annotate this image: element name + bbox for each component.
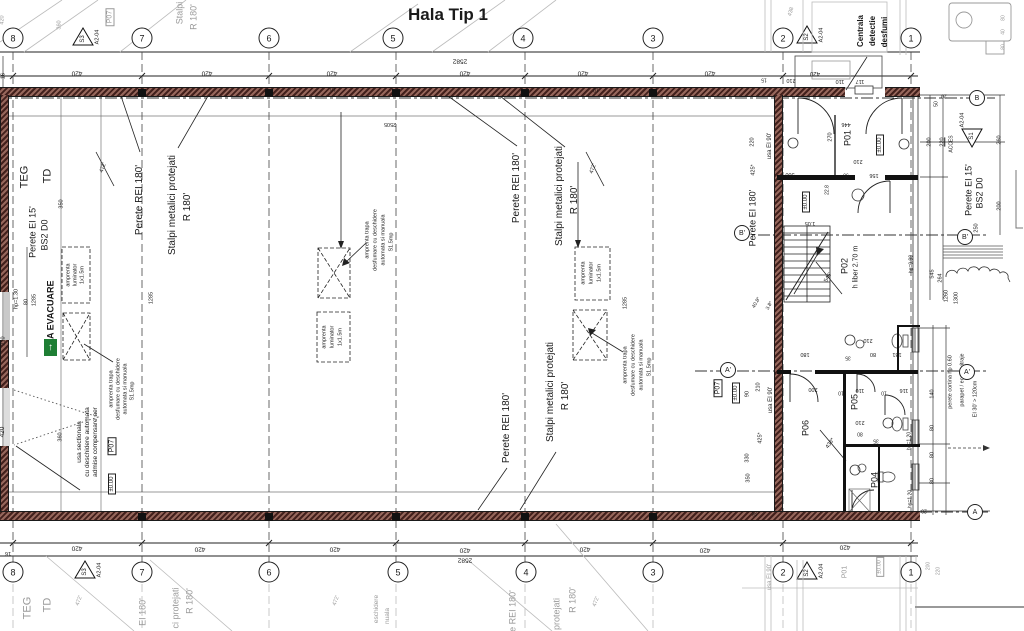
annotation: 2582	[458, 556, 472, 563]
annotation: cu deschidere automata	[85, 407, 92, 476]
annotation: 420	[0, 427, 6, 438]
grid-bubble-top: 2	[773, 28, 794, 49]
partition-wall	[897, 325, 899, 372]
annotation: Perete REI 180'	[512, 153, 522, 223]
annotation: 545	[930, 269, 936, 278]
grid-bubble-bottom: 8	[3, 562, 24, 583]
annotation: ±0.00	[802, 192, 810, 213]
annotation: 1x1.5m	[80, 266, 86, 284]
annotation: 200	[808, 385, 817, 391]
annotation: luminator	[589, 262, 595, 285]
annotation: 420	[72, 69, 83, 76]
partition-wall	[885, 175, 918, 180]
annotation: amprenta	[581, 261, 587, 284]
annotation: 90	[745, 391, 751, 397]
annotation: hp=1.20	[909, 490, 914, 508]
annotation: 80	[857, 431, 863, 436]
annotation: ±0.00	[876, 557, 884, 577]
annotation: 10	[838, 390, 844, 395]
annotation: BS2 D0	[976, 177, 985, 208]
grid-bubble-bottom: 6	[259, 562, 280, 583]
annotation: ±0.00	[876, 135, 884, 156]
annotation: TEG	[23, 597, 34, 620]
annotation: 200	[927, 137, 933, 146]
column	[521, 513, 529, 521]
annotation: 110	[836, 77, 845, 83]
grid-bubble-top: 4	[513, 28, 534, 49]
annotation: A2-04	[819, 564, 825, 579]
annotation: 1285	[623, 297, 629, 309]
annotation: 156	[869, 171, 878, 177]
annotation: ACCES	[950, 135, 955, 152]
annotation: automata si manuala	[123, 363, 129, 414]
annotation: 80	[870, 350, 876, 356]
annotation: desfumare cu deschidere	[631, 334, 637, 396]
annotation: parapet / ecran vitraje	[960, 353, 966, 406]
annotation: S2	[804, 569, 810, 576]
annotation: R 180'	[561, 382, 571, 411]
annotation: S2	[804, 33, 810, 40]
annotation: 360	[57, 20, 63, 29]
grid-bubble-bottom: 2	[773, 562, 794, 583]
grid-bubble-letter: A'	[720, 362, 736, 378]
annotation: 420	[0, 15, 6, 24]
wall-divider-hatched	[774, 95, 783, 511]
annotation: protejati	[553, 598, 562, 630]
annotation: R 180'	[186, 588, 195, 614]
annotation: 425*	[758, 432, 764, 443]
annotation: Perete EI 15'	[29, 206, 38, 258]
annotation: A2-04	[960, 113, 966, 128]
annotation: hp=1.20	[908, 432, 913, 450]
annotation: 420	[195, 545, 206, 552]
annotation: TEG	[20, 166, 31, 189]
annotation: luminator	[73, 264, 79, 287]
annotation: 210	[863, 336, 872, 342]
grid-bubble-top: 7	[132, 28, 153, 49]
annotation: amprenta	[322, 325, 328, 348]
annotation: e REI 180'	[509, 590, 518, 631]
annotation: Stalpi	[176, 2, 185, 25]
annotation: 420	[840, 543, 851, 550]
annotation: 210	[1, 336, 7, 345]
annotation: admise compensare aer	[93, 407, 100, 477]
annotation: 15	[761, 77, 767, 82]
annotation: 2505	[384, 120, 396, 126]
annotation: P07	[106, 8, 115, 26]
annotation: A2-04	[95, 30, 101, 45]
annotation: 200	[927, 562, 932, 570]
wall-top-hatched	[0, 87, 845, 97]
annotation: Perete EI 15'	[965, 164, 974, 216]
annotation: S1.5mp	[647, 358, 653, 377]
annotation: amprenta trapa	[109, 370, 115, 407]
wall-left-hatched	[0, 95, 9, 292]
wall-left-hatched	[0, 340, 9, 388]
annotation: S1	[969, 132, 975, 139]
annotation: 264	[938, 273, 944, 282]
annotation: R 180'	[190, 4, 199, 30]
annotation: 200	[997, 201, 1003, 210]
grid-bubble-bottom: 5	[388, 562, 409, 583]
annotation: 420	[578, 69, 589, 76]
annotation: S1.5mp	[389, 233, 395, 252]
annotation: ±0.00	[108, 474, 116, 495]
annotation: desfumare cu deschidere	[373, 209, 379, 271]
annotation: A2-04	[97, 563, 103, 578]
annotation: 20	[921, 508, 927, 513]
grid-bubble-letter: A'	[959, 364, 975, 380]
grid-bubble-bottom: 3	[643, 562, 664, 583]
annotation: 16	[5, 549, 11, 555]
annotation: 360	[58, 432, 64, 441]
grid-bubble-top: 8	[3, 28, 24, 49]
annotation: Stalpi metalici protejati	[555, 146, 565, 246]
column	[521, 89, 529, 97]
column	[392, 89, 400, 97]
wall-left-hatched	[0, 446, 9, 511]
grid-bubble-letter: A	[967, 504, 983, 520]
annotation: R 180'	[183, 193, 193, 222]
grid-bubble-bottom: 7	[132, 562, 153, 583]
annotation: amprenta trapa	[623, 346, 629, 383]
annotation: 80	[930, 452, 936, 458]
annotation: 80	[930, 425, 936, 431]
annotation: 446	[841, 120, 850, 126]
annotation: 420	[460, 546, 471, 553]
annotation: 350	[59, 199, 65, 208]
annotation: 20	[941, 93, 947, 98]
annotation: Centrala	[857, 15, 865, 47]
annotation: ±0.00	[732, 383, 740, 404]
annotation: 420	[460, 69, 471, 76]
annotation: Perete REI 180'	[135, 165, 145, 235]
partition-wall	[815, 370, 918, 374]
annotation: 420	[700, 546, 711, 553]
annotation: eschidere	[374, 595, 381, 623]
grid-bubble-letter: B	[969, 90, 985, 106]
grid-bubble-letter: B'	[957, 229, 973, 245]
annotation: P01	[844, 130, 853, 146]
annotation: 1285	[32, 294, 38, 306]
annotation: 220	[750, 137, 756, 146]
annotation: 80	[24, 299, 30, 305]
annotation: TD	[43, 598, 54, 613]
annotation: 140	[930, 389, 936, 398]
annotation: Stalpi metalici protejati	[168, 155, 178, 255]
annotation: 80	[1002, 15, 1007, 21]
annotation: desfumi	[881, 17, 889, 48]
annotation: 20	[754, 511, 759, 517]
annotation: perete cortina hp 0.60	[948, 355, 954, 409]
grid-bubble-top: 3	[643, 28, 664, 49]
annotation: 420	[202, 69, 213, 76]
annotation: 330	[745, 453, 751, 462]
annotation: hp=1.30	[14, 289, 20, 309]
wall-top-hatched	[885, 87, 920, 97]
annotation: automata si manuala	[639, 339, 645, 390]
evacuation-door	[4, 292, 10, 340]
annotation: 425*	[751, 164, 757, 175]
annotation: 420	[72, 544, 83, 551]
column	[649, 89, 657, 97]
annotation: S3	[82, 568, 88, 575]
page-title: Hala Tip 1	[408, 5, 488, 25]
annotation: R 180'	[570, 186, 580, 215]
annotation: luminator	[330, 326, 336, 349]
annotation: 250	[974, 223, 980, 232]
annotation: 1x1.5m	[597, 264, 603, 282]
grid-bubble-top: 5	[383, 28, 404, 49]
partition-wall	[777, 370, 791, 374]
annotation: P07	[108, 437, 117, 455]
annotation: 300	[785, 170, 794, 176]
column	[138, 513, 146, 521]
floor-plan-canvas: Hala Tip 1 ↑ TEGTDPerete EI 15'BS2 D0USA…	[0, 0, 1024, 631]
annotation: usa sectionala	[77, 421, 84, 463]
annotation: 2582	[453, 57, 467, 64]
annotation: EI 30' > 120cm	[973, 381, 979, 418]
annotation: 80	[930, 478, 936, 484]
annotation: 220	[940, 137, 946, 146]
annotation: amprenta	[66, 263, 72, 286]
annotation: P06	[802, 420, 811, 436]
annotation: 1285	[149, 292, 155, 304]
annotation: 50	[935, 101, 940, 107]
annotation: 90	[843, 172, 849, 177]
annotation: usa EI 90'	[768, 387, 774, 414]
annotation: automata si manuala	[381, 214, 387, 265]
annotation: 22.8	[826, 185, 831, 195]
annotation: 35	[845, 355, 851, 360]
annotation: P01	[842, 566, 849, 578]
annotation: S3	[80, 35, 86, 42]
annotation: detectie	[869, 16, 877, 46]
partition-wall	[897, 325, 920, 327]
column	[138, 89, 146, 97]
annotation: R 180'	[569, 587, 578, 613]
annotation: 210	[756, 382, 762, 391]
annotation: usa EI 90'	[767, 133, 773, 160]
annotation: S1.5mp	[130, 382, 136, 401]
grid-bubble-letter: B'	[734, 225, 750, 241]
annotation: 350	[746, 473, 752, 482]
annotation: 220	[937, 567, 942, 575]
column	[265, 89, 273, 97]
annotation: 420	[327, 69, 338, 76]
annotation: h liber 2.70 m	[853, 246, 860, 288]
annotation: 10	[330, 86, 336, 91]
annotation: 80	[1002, 44, 1007, 50]
annotation: 180	[800, 350, 809, 356]
column	[392, 513, 400, 521]
annotation: Stalpi metalici protejati	[546, 342, 556, 442]
annotation: 420	[810, 70, 820, 76]
annotation: ci protejati	[172, 587, 181, 628]
annotation: 110	[856, 386, 865, 392]
annotation: BS2 D0	[41, 219, 50, 250]
annotation: TD	[43, 169, 54, 184]
annotation: P04	[871, 472, 880, 488]
annotation: 10	[881, 390, 887, 395]
annotation: nuala	[385, 608, 392, 624]
annotation: hp=0.99	[910, 255, 915, 273]
annotation: Perete EI 180'	[749, 190, 758, 247]
annotation: 116	[900, 386, 909, 392]
grid-bubble-bottom: 4	[516, 562, 537, 583]
annotation: 210	[786, 76, 795, 82]
annotation: desfumare cu deschidere	[116, 358, 122, 420]
annotation: A2-04	[819, 28, 825, 43]
annotation: 420	[330, 545, 341, 552]
annotation: 131	[892, 350, 901, 356]
column	[649, 513, 657, 521]
annotation: 260	[997, 135, 1003, 144]
annotation: 1x1.5m	[338, 328, 344, 346]
annotation: 420	[705, 69, 716, 76]
annotation: 10	[593, 87, 599, 92]
exit-sign-icon: ↑	[44, 339, 57, 356]
grid-bubble-top: 6	[259, 28, 280, 49]
annotation: 117	[856, 77, 865, 83]
annotation: 16	[1, 73, 7, 79]
annotation: 210	[855, 418, 864, 424]
grid-bubble-bottom: 1	[901, 562, 922, 583]
annotation: 210	[853, 157, 862, 163]
column	[265, 513, 273, 521]
annotation: amprenta trapa	[365, 221, 371, 258]
annotation: 270	[828, 132, 834, 141]
annotation: EI 180'	[139, 598, 148, 626]
annotation: P05	[851, 394, 860, 410]
annotation: 35	[873, 438, 879, 443]
annotation: 420	[580, 545, 591, 552]
annotation: 1300	[954, 292, 960, 304]
annotation: P07	[714, 379, 723, 397]
annotation: Perete REI 180'	[502, 393, 512, 463]
annotation: P02	[841, 258, 850, 274]
annotation: 1260	[944, 290, 950, 302]
annotation: 40	[1002, 29, 1007, 35]
grid-bubble-top: 1	[901, 28, 922, 49]
annotation: 1.05	[805, 219, 816, 225]
